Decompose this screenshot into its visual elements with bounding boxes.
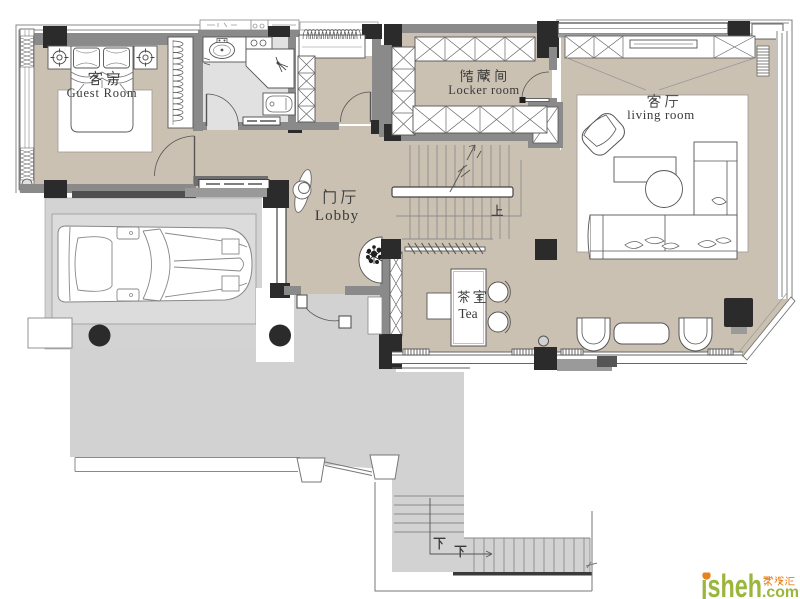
svg-text:Guest Room: Guest Room [67, 86, 138, 100]
svg-text:Locker room: Locker room [448, 83, 520, 97]
svg-text:.com: .com [762, 584, 799, 599]
svg-text:Tea: Tea [458, 306, 477, 321]
svg-text:Lobby: Lobby [315, 208, 359, 224]
svg-text:living room: living room [627, 107, 695, 122]
